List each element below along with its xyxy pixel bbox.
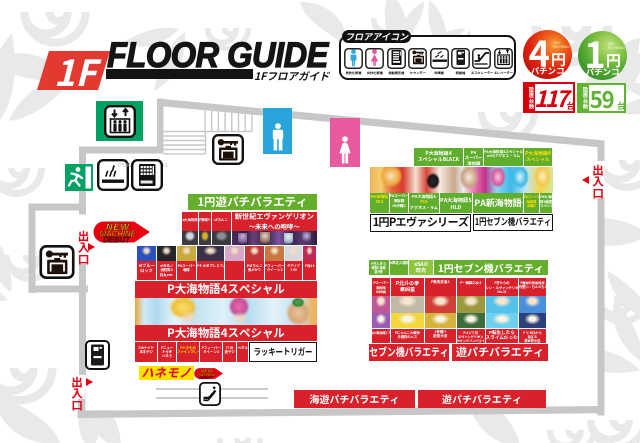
svg-text:DEBUT: DEBUT (103, 235, 131, 243)
svg-text:DEBUT: DEBUT (199, 374, 213, 379)
